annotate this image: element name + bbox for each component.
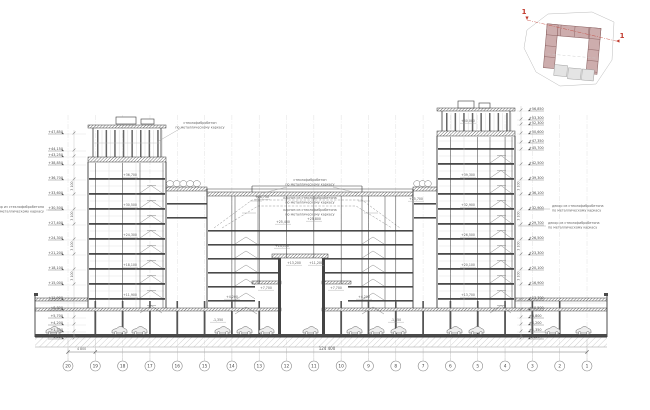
- elevation-right: +42,500: [529, 161, 544, 165]
- elevation-right: +36,100: [529, 191, 544, 195]
- parked-car: [237, 327, 252, 335]
- elevation-interior: +26,500: [461, 233, 475, 237]
- parked-car: [447, 327, 462, 335]
- elevation-left: +30,500: [48, 206, 63, 210]
- material-note: по металлическому каркасу: [548, 225, 597, 229]
- elevation-left: +33,600: [48, 191, 63, 195]
- grid-bubble-label: 14: [229, 364, 235, 370]
- floor-height-dim: 3 100: [516, 241, 520, 250]
- elevation-interior: +13,200: [287, 261, 301, 265]
- parked-car: [576, 327, 591, 335]
- elevation-interior: +25,400: [276, 220, 290, 224]
- floor-height-dim: 3 100: [70, 211, 74, 220]
- grid-bubble-label: 17: [147, 364, 153, 370]
- grid-bubble-label: 2: [558, 364, 561, 370]
- parked-car: [369, 327, 384, 335]
- elevation-right: +32,900: [529, 206, 544, 210]
- elevation-left: +18,100: [48, 266, 63, 270]
- bay-dimension: 4 800: [77, 347, 86, 351]
- section-drawing: 124 4004 8003 1003 1003 1003 1003 1003 1…: [0, 0, 650, 410]
- elevation-right: +53,300: [529, 116, 544, 120]
- grid-bubble-label: 4: [504, 364, 507, 370]
- elevation-right: +1,350: [529, 328, 542, 332]
- grid-bubble-label: 16: [175, 364, 181, 370]
- elevation-interior: +11,200: [309, 261, 323, 265]
- floor-height-dim: 3 100: [516, 271, 520, 280]
- elevation-left: +8,800: [50, 306, 63, 310]
- elevation-left: -1,350: [52, 335, 63, 339]
- material-note: по металлическому каркасу: [552, 208, 601, 212]
- elevation-left: +43,250: [48, 153, 63, 157]
- elevation-interior: +32,900: [461, 203, 475, 207]
- elevation-interior: -1,350: [213, 318, 223, 322]
- parked-car: [469, 327, 484, 335]
- elevation-interior: +7,700: [330, 286, 342, 290]
- elevation-right: +4,200: [529, 321, 542, 325]
- material-note: по металлическому каркасу: [285, 212, 334, 216]
- elevation-left: +38,850: [48, 161, 63, 165]
- grid-bubble-label: 5: [476, 364, 479, 370]
- grid-bubbles: 2019181716151413121110987654321: [63, 348, 592, 371]
- floor-height-dim: 3 100: [70, 181, 74, 190]
- elevation-right: +56,850: [529, 107, 544, 111]
- elevation-interior: +36,700: [123, 173, 137, 177]
- elevation-interior: +14,170: [275, 244, 289, 248]
- elevation-right: +45,700: [529, 146, 544, 150]
- grid-bubble-label: 18: [120, 364, 126, 370]
- elevation-left: +27,400: [48, 221, 63, 225]
- elevation-interior: +25,800: [307, 217, 321, 221]
- elevation-interior: +50,000: [461, 119, 475, 123]
- elevation-right: +10,500: [529, 306, 544, 310]
- elevation-left: +44,150: [48, 147, 63, 151]
- blueprint-sheet: 124 4004 8003 1003 1003 1003 1003 1003 1…: [0, 0, 650, 410]
- material-note: по металлическому каркасу: [0, 209, 44, 213]
- floor-height-dim: 3 100: [516, 211, 520, 220]
- grid-bubble-label: 15: [202, 364, 208, 370]
- parked-car: [347, 327, 362, 335]
- grid-bubble-label: 9: [367, 364, 370, 370]
- elevation-interior: +25,700: [409, 197, 423, 201]
- grid-bubble-label: 6: [449, 364, 452, 370]
- elevation-left: +21,200: [48, 251, 63, 255]
- elevation-left: +1,350: [50, 328, 63, 332]
- grid-bubble-label: 1: [586, 364, 589, 370]
- parked-car: [132, 327, 147, 335]
- floor-height-dim: 3 100: [70, 241, 74, 250]
- overall-dimension: 124 400: [319, 346, 336, 351]
- key-plan: 11: [522, 8, 625, 86]
- elevation-right: +20,100: [529, 266, 544, 270]
- elevation-right: +50,600: [529, 130, 544, 134]
- section-mark-1: 1: [522, 8, 527, 16]
- parked-car: [545, 327, 560, 335]
- elevation-right: +26,500: [529, 236, 544, 240]
- elevation-left: +47,850: [48, 130, 63, 134]
- elevation-right: +6,800: [529, 314, 542, 318]
- elevation-interior: +24,300: [123, 233, 137, 237]
- parked-car: [259, 327, 274, 335]
- grid-bubble-label: 19: [93, 364, 99, 370]
- section-mark-1: 1: [620, 32, 625, 40]
- building-section: [34, 101, 608, 337]
- elevation-interior: +20,100: [461, 263, 475, 267]
- grid-bubble-label: 12: [284, 364, 290, 370]
- grid-bubble-label: 3: [531, 364, 534, 370]
- elevation-left: +11,900: [48, 296, 63, 300]
- floor-height-dim: 3 100: [70, 271, 74, 280]
- elevation-interior: +4,200: [226, 295, 238, 299]
- elevation-interior: +18,100: [123, 263, 137, 267]
- elevation-left: +24,300: [48, 236, 63, 240]
- elevation-interior: -1,350: [391, 318, 401, 322]
- elevation-interior: +7,700: [260, 286, 272, 290]
- elevation-left: +15,000: [48, 281, 63, 285]
- grid-axis-lines: [68, 115, 587, 360]
- elevation-interior: +13,700: [461, 293, 475, 297]
- grid-bubble-label: 8: [394, 364, 397, 370]
- floor-height-dim: 3 100: [516, 181, 520, 190]
- elevation-interior: +11,900: [123, 293, 137, 297]
- elevation-interior: +28,750: [255, 195, 269, 199]
- grid-bubble-label: 10: [338, 364, 344, 370]
- elevation-left: +5,700: [50, 314, 63, 318]
- elevation-left: +4,200: [50, 321, 63, 325]
- elevation-interior: +39,300: [461, 173, 475, 177]
- material-note: по металлическому каркасу: [285, 182, 334, 186]
- elevation-interior: +30,500: [123, 203, 137, 207]
- grid-bubble-label: 13: [256, 364, 262, 370]
- grid-bubble-label: 20: [65, 364, 71, 370]
- elevation-right: -1,350: [529, 335, 540, 339]
- elevation-left: +36,700: [48, 176, 63, 180]
- grid-bubble-label: 11: [311, 364, 317, 370]
- text-annotations: стеклофибробетонпо металлическому каркас…: [0, 121, 604, 229]
- elevation-right: +52,300: [529, 121, 544, 125]
- material-note: по металлическому каркасу: [285, 200, 334, 204]
- elevation-right: +13,700: [529, 296, 544, 300]
- elevation-right: +29,700: [529, 221, 544, 225]
- elevation-right: +47,350: [529, 139, 544, 143]
- parked-car: [112, 327, 127, 335]
- elevation-right: +39,300: [529, 176, 544, 180]
- parked-car: [391, 327, 406, 335]
- elevation-right: +16,900: [529, 281, 544, 285]
- keyplan-building: [543, 24, 601, 82]
- elevation-interior: +4,200: [358, 295, 370, 299]
- grid-bubble-label: 7: [422, 364, 425, 370]
- elevation-right: +23,300: [529, 251, 544, 255]
- parked-car: [215, 327, 230, 335]
